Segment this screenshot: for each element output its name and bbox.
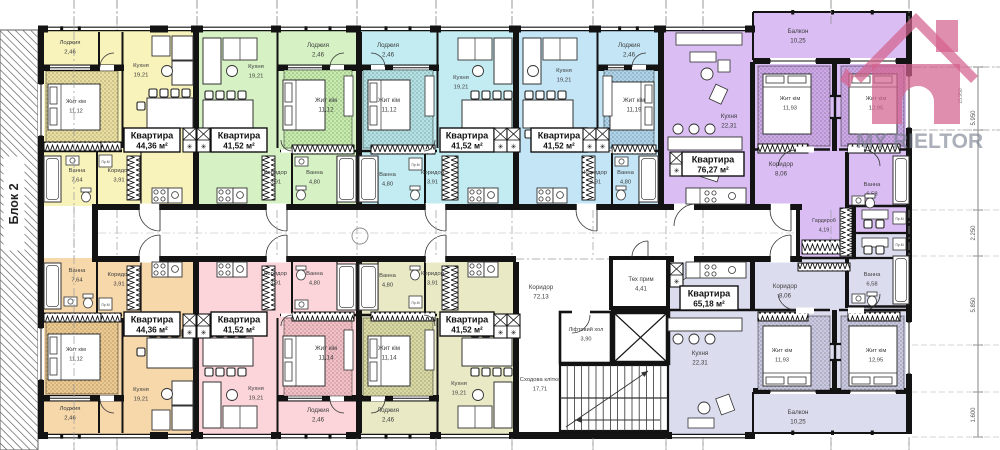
svg-text:3,91: 3,91 (590, 180, 601, 186)
svg-text:Тех прим: Тех прим (628, 277, 653, 283)
svg-text:8,06: 8,06 (779, 293, 792, 300)
svg-text:2,46: 2,46 (64, 416, 76, 422)
svg-text:Кухня: Кухня (133, 387, 149, 393)
svg-text:✳: ✳ (674, 278, 680, 286)
svg-text:44,36 м²: 44,36 м² (136, 142, 168, 151)
svg-text:Кухня: Кухня (453, 75, 469, 81)
svg-text:Гардероб: Гардероб (812, 218, 836, 224)
svg-text:Квартира: Квартира (688, 289, 731, 299)
svg-text:✳: ✳ (511, 143, 517, 151)
svg-text:3,91: 3,91 (113, 178, 124, 184)
svg-text:Ванна: Ванна (379, 273, 396, 279)
svg-text:✳: ✳ (587, 143, 593, 151)
svg-text:11,19: 11,19 (626, 107, 642, 114)
svg-text:Балкон: Балкон (788, 28, 809, 35)
svg-text:Жит кім: Жит кім (378, 97, 400, 104)
svg-text:Жит кім: Жит кім (315, 97, 337, 104)
svg-text:Коридор: Коридор (264, 170, 287, 176)
svg-text:✳: ✳ (674, 167, 680, 175)
svg-text:Жит кім: Жит кім (66, 347, 86, 353)
svg-text:Жит кім: Жит кім (866, 348, 887, 354)
svg-text:2,46: 2,46 (382, 52, 395, 59)
svg-text:Квартира: Квартира (446, 315, 489, 325)
svg-text:Лоджия: Лоджия (307, 42, 329, 49)
svg-text:Ванна: Ванна (864, 182, 881, 188)
svg-text:Ванна: Ванна (864, 272, 881, 278)
svg-text:Лоджия: Лоджия (377, 42, 399, 49)
svg-text:Пр.М: Пр.М (101, 160, 109, 164)
svg-text:8,06: 8,06 (775, 171, 788, 178)
svg-text:5.950: 5.950 (971, 110, 977, 126)
svg-text:41,52 м²: 41,52 м² (451, 142, 483, 151)
svg-text:4,19: 4,19 (819, 228, 830, 234)
svg-text:Ванна: Ванна (617, 170, 634, 176)
svg-text:Пр.М: Пр.М (895, 217, 903, 221)
svg-text:Ванна: Ванна (306, 271, 323, 277)
svg-text:Лоджия: Лоджия (60, 406, 81, 412)
svg-text:2,46: 2,46 (312, 52, 325, 59)
svg-text:✳: ✳ (511, 329, 517, 337)
svg-text:Кухня: Кухня (451, 381, 467, 387)
svg-text:Лоджия: Лоджия (618, 42, 640, 49)
svg-text:22,31: 22,31 (692, 360, 708, 367)
svg-text:Коридор: Коридор (264, 271, 287, 277)
svg-text:65,18 м²: 65,18 м² (693, 300, 725, 309)
svg-text:Балкон: Балкон (788, 409, 809, 416)
svg-text:2,46: 2,46 (382, 417, 395, 424)
svg-text:4,80: 4,80 (309, 281, 320, 287)
svg-text:Квартира: Квартира (692, 155, 735, 165)
svg-text:Пр.М: Пр.М (895, 243, 903, 247)
svg-text:Пр.М: Пр.М (101, 303, 109, 307)
svg-text:6,58: 6,58 (866, 282, 877, 288)
svg-text:19,21: 19,21 (249, 74, 264, 80)
svg-text:1.600: 1.600 (971, 407, 977, 423)
svg-text:Кухня: Кухня (556, 68, 572, 74)
svg-text:19,21: 19,21 (557, 78, 572, 84)
svg-text:19,21: 19,21 (249, 396, 264, 402)
svg-text:MY RIELTOR: MY RIELTOR (856, 130, 983, 153)
svg-text:Квартира: Квартира (538, 131, 581, 141)
svg-text:11,93: 11,93 (783, 106, 797, 112)
svg-text:Ванна: Ванна (306, 170, 323, 176)
svg-text:4,80: 4,80 (620, 180, 631, 186)
svg-text:Сходова клітка: Сходова клітка (520, 377, 561, 383)
svg-text:Коридор: Коридор (769, 161, 794, 168)
svg-text:44,36 м²: 44,36 м² (136, 326, 168, 335)
svg-text:19,21: 19,21 (452, 391, 467, 397)
svg-text:Коридор: Коридор (421, 170, 444, 176)
svg-text:✳: ✳ (498, 143, 504, 151)
svg-text:3,91: 3,91 (427, 180, 438, 186)
svg-text:41,52 м²: 41,52 м² (543, 142, 575, 151)
svg-text:17,71: 17,71 (533, 387, 548, 393)
svg-text:Жит кім: Жит кім (378, 345, 400, 352)
svg-text:Квартира: Квартира (131, 131, 174, 141)
svg-text:Кухня: Кухня (248, 64, 264, 70)
svg-text:4,80: 4,80 (382, 182, 393, 188)
svg-text:11,12: 11,12 (69, 109, 83, 115)
svg-text:Коридор: Коридор (584, 170, 607, 176)
svg-text:Жит кім: Жит кім (780, 96, 801, 102)
svg-text:41,52 м²: 41,52 м² (223, 142, 255, 151)
svg-text:Кухня: Кухня (133, 63, 149, 69)
svg-text:22,31: 22,31 (721, 123, 737, 130)
svg-text:3,91: 3,91 (113, 282, 124, 288)
svg-text:19,21: 19,21 (454, 85, 469, 91)
svg-text:3,91: 3,91 (270, 180, 281, 186)
svg-text:11,14: 11,14 (381, 355, 397, 362)
svg-text:76,27 м²: 76,27 м² (697, 166, 729, 175)
svg-text:7,64: 7,64 (71, 278, 83, 284)
svg-text:3,91: 3,91 (270, 281, 281, 287)
svg-text:3,91: 3,91 (427, 281, 438, 287)
svg-text:Кухня: Кухня (248, 386, 264, 392)
svg-text:Жит кім: Жит кім (623, 97, 645, 104)
svg-text:4,80: 4,80 (382, 283, 393, 289)
svg-text:5.850: 5.850 (971, 297, 977, 313)
svg-text:Коридор: Коридор (529, 284, 554, 291)
svg-text:Пр.М: Пр.М (411, 163, 419, 167)
svg-text:4,80: 4,80 (309, 180, 320, 186)
svg-text:Ванна: Ванна (69, 168, 86, 174)
svg-text:Кухня: Кухня (692, 350, 709, 357)
svg-text:11,12: 11,12 (69, 357, 83, 363)
svg-text:✳: ✳ (187, 329, 193, 337)
svg-text:Лоджия: Лоджия (307, 407, 329, 414)
svg-text:✳: ✳ (201, 143, 207, 151)
svg-text:19,21: 19,21 (134, 397, 149, 403)
svg-text:✳: ✳ (600, 143, 606, 151)
svg-text:2,46: 2,46 (312, 417, 325, 424)
svg-text:2,46: 2,46 (623, 52, 636, 59)
svg-text:4,41: 4,41 (635, 287, 647, 293)
svg-text:Жит кім: Жит кім (315, 345, 337, 352)
svg-text:Ванна: Ванна (69, 268, 86, 274)
svg-text:Квартира: Квартира (446, 131, 489, 141)
svg-text:11,93: 11,93 (775, 358, 789, 364)
svg-text:Квартира: Квартира (218, 131, 261, 141)
svg-text:7,64: 7,64 (71, 178, 83, 184)
svg-text:✳: ✳ (498, 329, 504, 337)
svg-text:Жит кім: Жит кім (66, 99, 86, 105)
svg-text:41,52 м²: 41,52 м² (223, 326, 255, 335)
svg-text:2,46: 2,46 (64, 50, 76, 56)
svg-text:Пр.М: Пр.М (411, 301, 419, 305)
svg-text:Лоджия: Лоджия (377, 407, 399, 414)
svg-text:Коридор: Коридор (421, 271, 444, 277)
svg-text:✳: ✳ (201, 329, 207, 337)
svg-text:Блок 2: Блок 2 (7, 183, 21, 224)
svg-text:Ванна: Ванна (379, 172, 396, 178)
svg-text:Квартира: Квартира (218, 315, 261, 325)
svg-text:Квартира: Квартира (131, 315, 174, 325)
svg-text:Кухня: Кухня (721, 113, 738, 120)
svg-text:Коридор: Коридор (773, 283, 798, 290)
svg-text:Жит кім: Жит кім (772, 348, 793, 354)
svg-text:72,13: 72,13 (533, 294, 549, 301)
svg-text:19,21: 19,21 (134, 73, 149, 79)
svg-text:11,14: 11,14 (318, 355, 334, 362)
svg-text:41,52 м²: 41,52 м² (451, 326, 483, 335)
svg-text:2.250: 2.250 (971, 225, 977, 241)
svg-text:10,25: 10,25 (790, 419, 806, 426)
svg-text:11,12: 11,12 (318, 107, 334, 114)
svg-text:3,90: 3,90 (581, 337, 592, 343)
svg-text:11,12: 11,12 (381, 107, 397, 114)
svg-text:Лоджия: Лоджия (60, 40, 81, 46)
svg-text:Ліфтовий хол: Ліфтовий хол (569, 326, 604, 333)
svg-text:10,25: 10,25 (790, 38, 806, 45)
svg-text:✳: ✳ (187, 143, 193, 151)
svg-text:12,95: 12,95 (869, 358, 884, 364)
